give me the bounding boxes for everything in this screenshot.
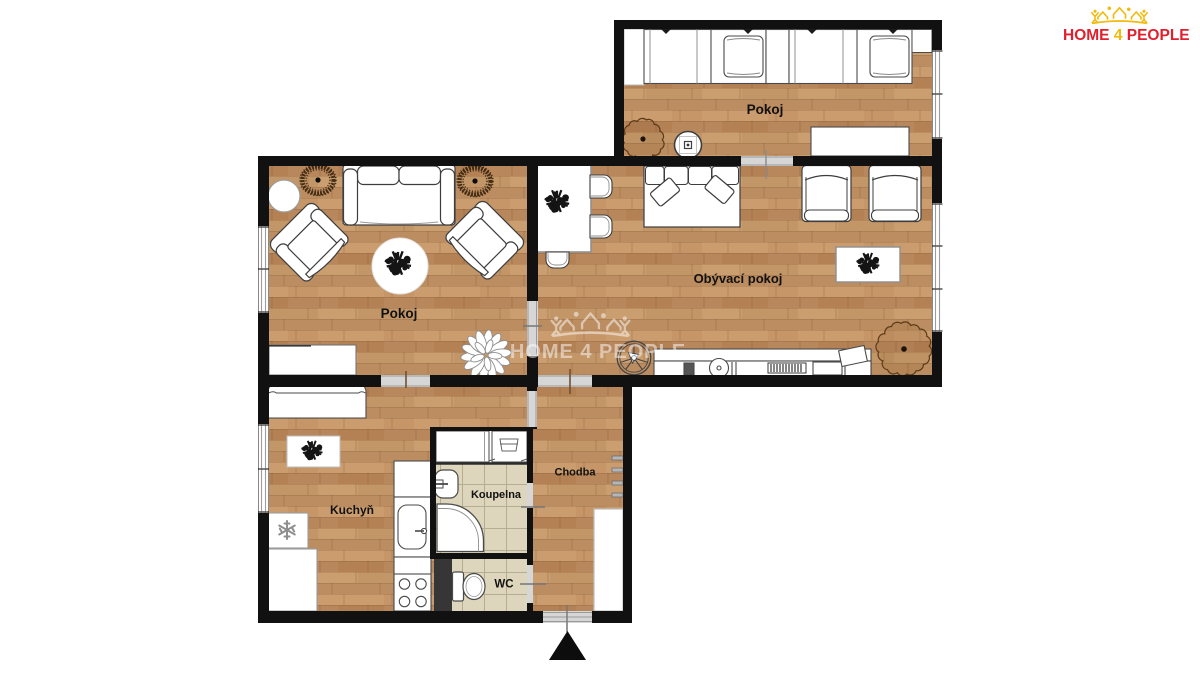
svg-text:Pokoj: Pokoj bbox=[747, 102, 784, 117]
svg-text:WC: WC bbox=[494, 579, 513, 591]
svg-text:Koupelna: Koupelna bbox=[471, 489, 522, 501]
svg-text:Kuchyň: Kuchyň bbox=[330, 503, 374, 517]
svg-text:HOME 4 PEOPLE: HOME 4 PEOPLE bbox=[1063, 27, 1190, 44]
svg-text:Pokoj: Pokoj bbox=[381, 306, 418, 321]
svg-text:Obývací pokoj: Obývací pokoj bbox=[694, 271, 783, 286]
svg-text:HOME 4 PEOPLE: HOME 4 PEOPLE bbox=[510, 341, 686, 363]
svg-text:Chodba: Chodba bbox=[555, 467, 597, 479]
